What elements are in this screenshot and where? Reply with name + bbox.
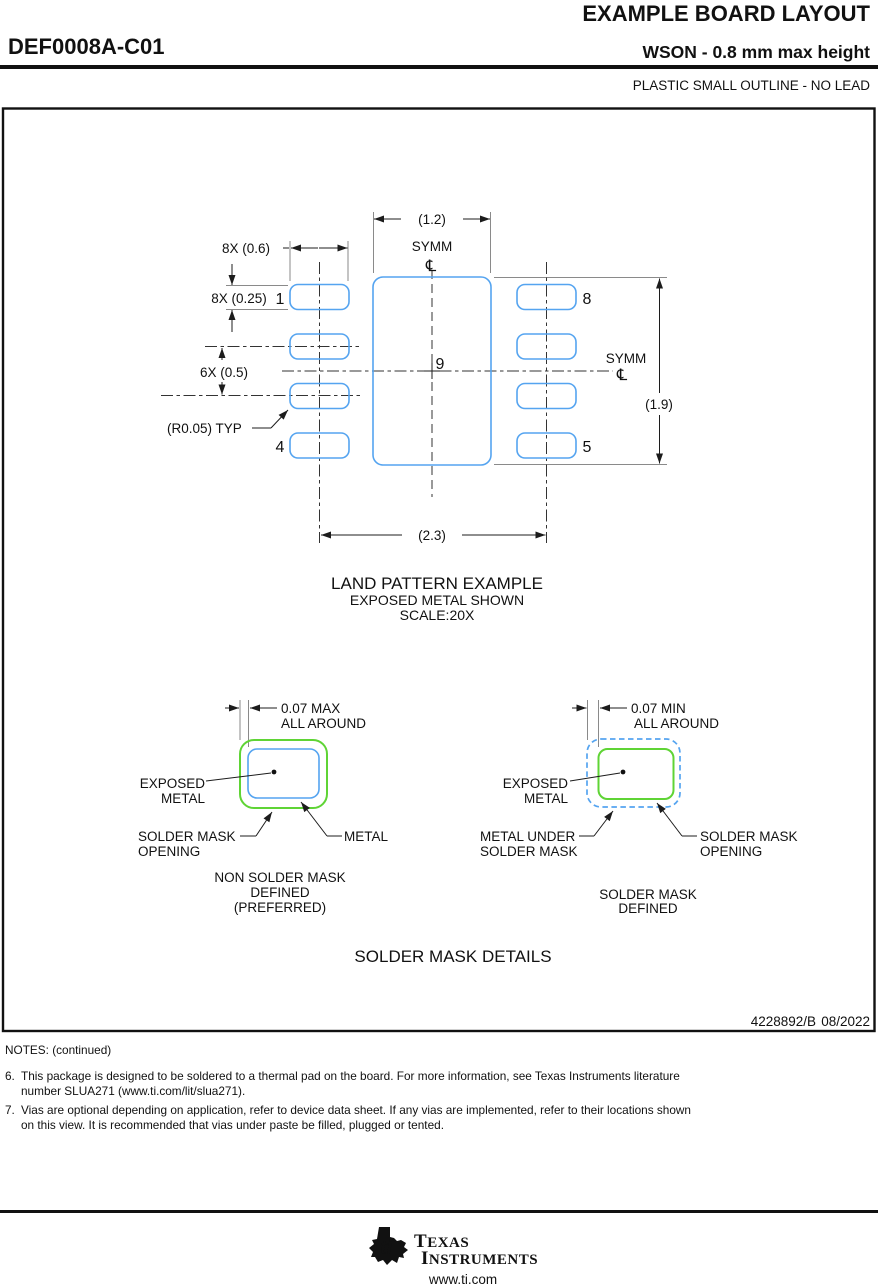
smd-opening-label-1: SOLDER MASK [700,829,798,844]
exposed-metal-dot [621,770,626,775]
metal-pad-shape [248,749,319,798]
pin-5-label: 5 [583,439,592,456]
nsmd-caption-3: (PREFERRED) [234,900,326,915]
dim-row-span: (2.3) [418,528,446,543]
pin-8-label: 8 [583,291,592,308]
dim-center-pad-height: (1.9) [645,397,673,412]
pin-9-label: 9 [436,356,445,373]
smd-caption-1: SOLDER MASK [599,887,697,902]
ti-url: www.ti.com [380,1272,546,1287]
exposed-metal-dot [272,770,277,775]
doc-number: 4228892/B [751,1014,816,1029]
nsmd-opening-label-1: SOLDER MASK [138,829,236,844]
symm-right-label: SYMM [606,351,647,366]
nsmd-detail-diagram: 0.07 MAX ALL AROUND EXPOSED METAL SOLDER… [138,700,388,915]
ti-monogram: ti [380,1237,393,1259]
dim-pitch: 6X (0.5) [200,365,248,380]
smd-dim-value: 0.07 MIN [631,701,686,716]
note-6-number: 6. [5,1069,15,1084]
nsmd-exposed-label-1: EXPOSED [140,776,206,791]
nsmd-metal-label: METAL [344,829,388,844]
land-pattern-subtitle2: SCALE:20X [400,607,475,623]
smd-dim-scope: ALL AROUND [634,716,719,731]
note-6-line-1: This package is designed to be soldered … [21,1069,680,1084]
smd-exposed-label-1: EXPOSED [503,776,569,791]
centerline-symbol-top: ℄ [425,258,437,275]
note-6-line-2: number SLUA271 (www.ti.com/lit/slua271). [21,1084,245,1099]
nsmd-exposed-label-2: METAL [161,791,205,806]
smd-under-label-2: SOLDER MASK [480,844,578,859]
smd-detail-diagram: 0.07 MIN ALL AROUND EXPOSED METAL METAL … [480,700,798,916]
note-7-number: 7. [5,1103,15,1118]
land-pattern-title: LAND PATTERN EXAMPLE [331,574,543,593]
centerline-symbol-right: ℄ [616,367,628,384]
dim-pad-width: 8X (0.6) [222,241,270,256]
dim-corner-radius: (R0.05) TYP [167,421,242,436]
smd-exposed-label-2: METAL [524,791,568,806]
smd-opening-label-2: OPENING [700,844,762,859]
nsmd-caption-2: DEFINED [250,885,310,900]
ti-logo-icon: ti [368,1226,410,1266]
pin-1-label: 1 [276,291,285,308]
doc-date: 08/2022 [821,1014,870,1029]
note-7-line-1: Vias are optional depending on applicati… [21,1103,691,1118]
land-pattern-diagram: (1.2) SYMM ℄ 8X (0.6) 8X (0.25) 1 6X (0.… [161,212,673,623]
solder-mask-details-title: SOLDER MASK DETAILS [354,947,551,966]
nsmd-opening-label-2: OPENING [138,844,200,859]
land-pattern-subtitle1: EXPOSED METAL SHOWN [350,592,524,608]
smd-under-label-1: METAL UNDER [480,829,576,844]
nsmd-dim-value: 0.07 MAX [281,701,340,716]
nsmd-caption-1: NON SOLDER MASK [214,870,345,885]
dimension-lines [222,219,660,535]
nsmd-dim-scope: ALL AROUND [281,716,366,731]
notes-heading: NOTES: (continued) [5,1043,111,1058]
dim-pad-height: 8X (0.25) [211,291,267,306]
symm-top-label: SYMM [412,239,453,254]
footer-rule [0,1210,878,1213]
dim-center-pad-width: (1.2) [418,212,446,227]
mask-opening-shape [599,749,674,799]
brand-instruments: INSTRUMENTS [421,1248,538,1270]
smd-caption-2: DEFINED [618,901,678,916]
pin-4-label: 4 [276,439,285,456]
note-7-line-2: on this view. It is recommended that via… [21,1118,444,1133]
